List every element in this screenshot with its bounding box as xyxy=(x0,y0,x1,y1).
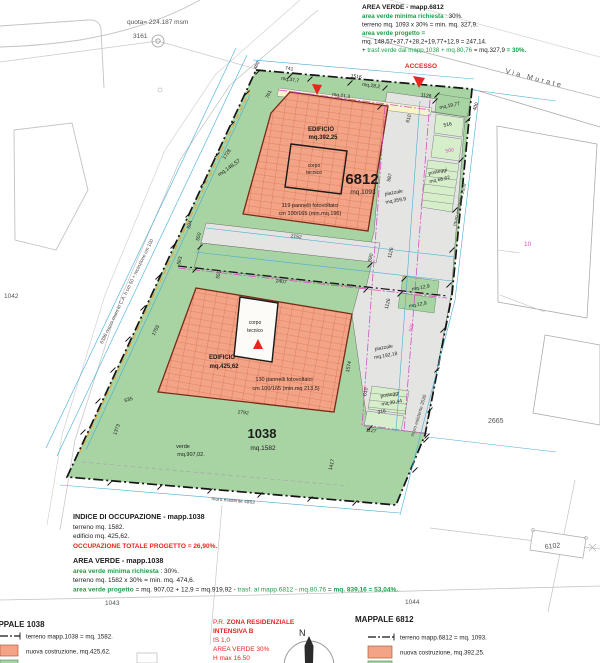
corpo-6812-line1: corpo xyxy=(308,163,321,169)
parcel-1042-label: 1042 xyxy=(4,293,19,300)
survey-point-label: 3161 xyxy=(133,33,148,40)
legend-6812-title: MAPPALE 6812 xyxy=(355,615,414,624)
building-outline-northwest xyxy=(0,20,104,88)
parcel-1038-area: mq.1582 xyxy=(250,445,276,452)
legend-mappale-1038: MAPPALE 1038 terreno mapp.1038 = mq. 158… xyxy=(0,620,113,663)
notes-indice-occupazione: INDICE DI OCCUPAZIONE - mapp.1038 terren… xyxy=(73,512,217,550)
svg-text:terreno mapp.6812 = mq. 1093.: terreno mapp.6812 = mq. 1093. xyxy=(400,635,487,642)
edificio-1038-area: mq.425,62 xyxy=(209,364,239,370)
legend-1038-title: MAPPALE 1038 xyxy=(0,620,45,629)
svg-text:400: 400 xyxy=(472,102,481,112)
terreno-line-symbol-6812 xyxy=(368,634,394,641)
edificio-6812-label: EDIFICIO xyxy=(308,127,334,133)
svg-text:P.R. ZONA RESIDENZIALE: P.R. ZONA RESIDENZIALE xyxy=(213,619,295,626)
zoning-note: P.R. ZONA RESIDENZIALE INTENSIVA B IS 1,… xyxy=(213,619,295,662)
svg-text:+ trasf.verde dal mapp.1038 +: + trasf.verde dal mapp.1038 + mq.80,76 =… xyxy=(362,47,526,54)
corpo-1038-line1: corpo xyxy=(249,320,262,326)
notes-area-verde-1038: AREA VERDE - mapp.1038 area verde minima… xyxy=(73,556,398,594)
svg-text:terreno mapp.1038 = mq. 1582.: terreno mapp.1038 = mq. 1582. xyxy=(26,634,113,641)
parcel-2665-label: 2665 xyxy=(488,418,504,425)
swatch-nuova-costruzione-6812 xyxy=(368,646,392,658)
svg-text:edificio mq. 425,62.: edificio mq. 425,62. xyxy=(73,533,130,540)
svg-text:area verde minima richiesta :: area verde minima richiesta : 30%. xyxy=(362,13,463,20)
svg-text:area verde progetto =: area verde progetto = xyxy=(362,30,425,37)
svg-text:mq. 148,57+37,7+28,2+19,77+12,: mq. 148,57+37,7+28,2+19,77+12,9 = 247,14… xyxy=(362,39,487,46)
svg-text:terreno mq. 1093 x 30% = min.: terreno mq. 1093 x 30% = min. mq. 327,9. xyxy=(362,22,478,29)
svg-text:OCCUPAZIONE TOTALE PROGETTO =: OCCUPAZIONE TOTALE PROGETTO = 26,90%. xyxy=(73,543,217,550)
verde-area: mq.907,02. xyxy=(177,452,205,458)
verde-label: verde xyxy=(176,444,190,450)
edificio-6812-area: mq.392,25 xyxy=(308,135,338,141)
neighbour-building-east xyxy=(497,126,597,318)
survey-quota-label: quota= 224.187 msm xyxy=(127,19,188,26)
svg-text:IS 1,0: IS 1,0 xyxy=(213,637,230,644)
edificio-1038-label: EDIFICIO xyxy=(209,355,235,361)
panels-6812-line1: 119 pannelli fotovoltaici xyxy=(282,203,339,209)
svg-text:nuova costruzione, mq.392,25.: nuova costruzione, mq.392,25. xyxy=(400,650,485,657)
svg-text:AREA VERDE - mapp.1038: AREA VERDE - mapp.1038 xyxy=(73,556,163,565)
parcel-outline-west xyxy=(14,123,88,250)
panels-1038-line1: 130 pannelli fotovoltaici xyxy=(255,377,312,383)
parcel-1043-label: 1043 xyxy=(105,600,120,607)
street-name-label: Via Murate xyxy=(504,66,564,90)
survey-point-marker xyxy=(152,35,164,92)
corpo-6812-line2: tecnico xyxy=(306,170,322,176)
svg-text:460: 460 xyxy=(253,60,262,70)
svg-text:area verde progetto = mq. 907,: area verde progetto = mq. 907,02 + 12,9 … xyxy=(73,587,398,594)
accesso-label: ACCESSO xyxy=(405,63,437,70)
parcel-6812-area: mq.1093 xyxy=(350,189,376,196)
parcel-1038-number: 1038 xyxy=(248,426,277,441)
parcel-6812-number: 6812 xyxy=(345,171,378,188)
panels-6812-line2: cm 100/165 (min.mq.196) xyxy=(279,211,342,217)
svg-text:nuova costruzione, mq.425,62.: nuova costruzione, mq.425,62. xyxy=(26,649,111,656)
site-plan-drawing: { "colors": { "verde": "#A8D3A3", "verde… xyxy=(0,0,600,663)
north-compass: N xyxy=(284,628,334,663)
corpo-1038-line2: tecnico xyxy=(247,328,263,334)
svg-text:area verde minima richiesta :: area verde minima richiesta : 30%. xyxy=(73,568,179,575)
neighbour-building-southeast xyxy=(533,335,600,425)
swatch-nuova-costruzione xyxy=(0,645,18,656)
notes-6812-title: AREA VERDE - mapp.6812 xyxy=(362,4,444,11)
legend-mappale-6812: MAPPALE 6812 terreno mapp.6812 = mq. 109… xyxy=(355,615,487,663)
parcel-6102-group: 6102 xyxy=(137,480,600,663)
via-murate-edge-3 xyxy=(472,89,600,127)
svg-text:terreno mq. 1582.: terreno mq. 1582. xyxy=(73,524,125,531)
north-label: N xyxy=(299,628,306,638)
parcel-10-label: 10 xyxy=(524,241,532,248)
svg-text:H max 16.50: H max 16.50 xyxy=(213,655,250,662)
svg-text:terreno mq. 1582 x 30% = min.: terreno mq. 1582 x 30% = min. mq. 474,6. xyxy=(73,577,195,584)
north-needle-icon xyxy=(305,636,314,663)
notes-area-verde-6812: AREA VERDE - mapp.6812 area verde minima… xyxy=(362,4,526,54)
panels-1038-line2: cm 100/165 (min.mq 213,5) xyxy=(252,386,319,392)
parcel-1044-label: 1044 xyxy=(405,599,420,606)
svg-text:AREA VERDE 30%: AREA VERDE 30% xyxy=(213,646,270,653)
svg-text:AREA VERDE - mapp.6812: AREA VERDE - mapp.6812 xyxy=(362,4,444,11)
svg-text:741: 741 xyxy=(285,65,294,72)
wall-bottom-label: muro esistente 4863 xyxy=(211,496,255,506)
svg-text:INDICE DI OCCUPAZIONE - mapp.1: INDICE DI OCCUPAZIONE - mapp.1038 xyxy=(73,512,205,521)
terreno-line-symbol xyxy=(0,633,20,640)
svg-text:INTENSIVA B: INTENSIVA B xyxy=(213,628,254,635)
